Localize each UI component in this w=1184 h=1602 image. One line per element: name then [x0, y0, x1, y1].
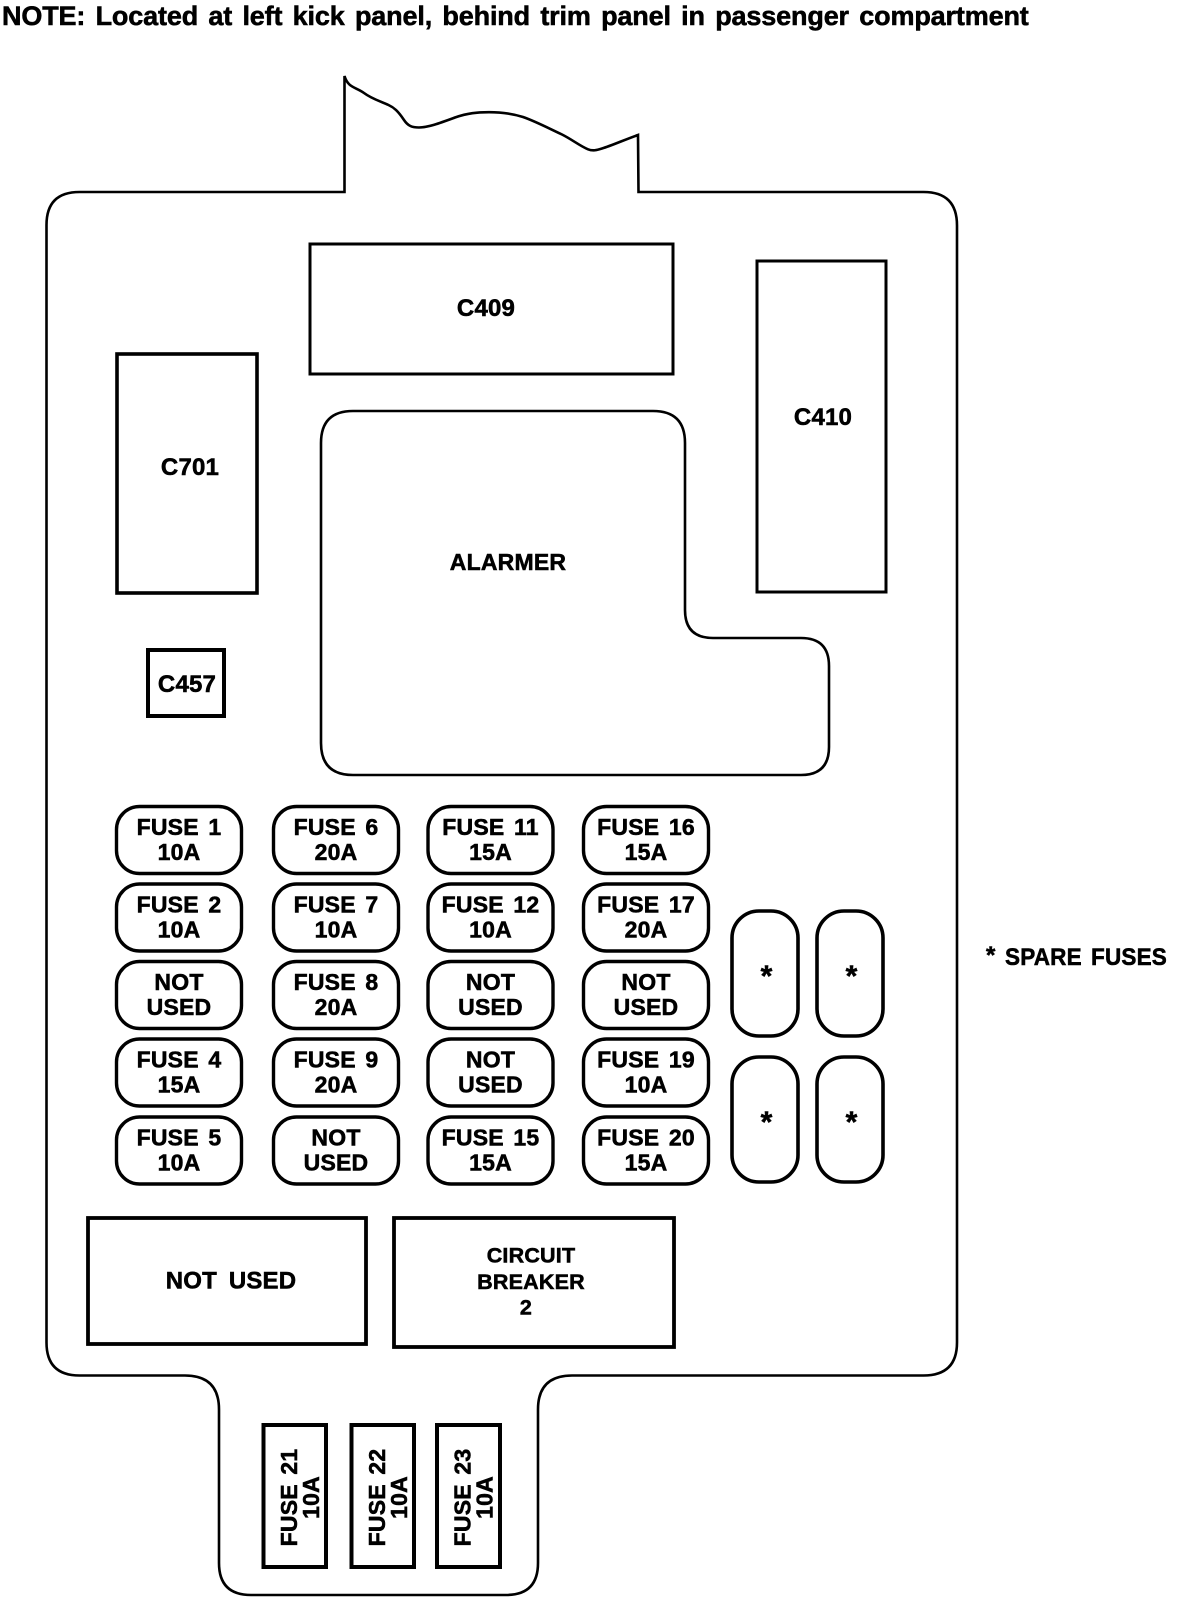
- svg-text:FUSE 15: FUSE 15: [442, 1125, 540, 1151]
- svg-text:10A: 10A: [469, 917, 512, 943]
- svg-text:10A: 10A: [298, 1476, 324, 1519]
- svg-text:USED: USED: [147, 994, 212, 1020]
- svg-text:15A: 15A: [469, 1150, 512, 1176]
- svg-text:10A: 10A: [625, 1072, 668, 1098]
- svg-text:FUSE 6: FUSE 6: [294, 814, 379, 840]
- svg-text:15A: 15A: [469, 839, 512, 865]
- svg-text:FUSE 2: FUSE 2: [137, 892, 222, 918]
- svg-text:FUSE 11: FUSE 11: [442, 814, 538, 840]
- svg-text:NOT: NOT: [466, 969, 515, 995]
- svg-text:NOTE: Located at left kick pan: NOTE: Located at left kick panel, behind…: [2, 1, 1029, 31]
- svg-text:NOT: NOT: [154, 969, 203, 995]
- svg-text:FUSE 16: FUSE 16: [597, 814, 695, 840]
- svg-text:20A: 20A: [625, 917, 668, 943]
- svg-text:NOT: NOT: [311, 1125, 360, 1151]
- svg-text:20A: 20A: [315, 1072, 358, 1098]
- svg-text:20A: 20A: [315, 994, 358, 1020]
- svg-text:USED: USED: [614, 994, 679, 1020]
- svg-text:BREAKER: BREAKER: [477, 1270, 585, 1294]
- svg-text:NOT USED: NOT USED: [166, 1268, 297, 1295]
- svg-text:*: *: [761, 1106, 773, 1139]
- svg-text:10A: 10A: [472, 1476, 498, 1519]
- svg-text:ALARMER: ALARMER: [450, 549, 567, 575]
- svg-text:FUSE 12: FUSE 12: [442, 892, 540, 918]
- svg-text:C409: C409: [457, 295, 515, 322]
- svg-text:NOT: NOT: [621, 969, 670, 995]
- svg-text:10A: 10A: [386, 1476, 412, 1519]
- svg-text:*: *: [986, 942, 996, 969]
- svg-text:FUSE 1: FUSE 1: [137, 814, 222, 840]
- svg-text:FUSE 19: FUSE 19: [597, 1047, 695, 1073]
- svg-text:C457: C457: [158, 671, 216, 698]
- svg-text:10A: 10A: [158, 839, 201, 865]
- svg-text:10A: 10A: [315, 917, 358, 943]
- svg-text:FUSE 20: FUSE 20: [597, 1125, 695, 1151]
- svg-text:15A: 15A: [625, 1150, 668, 1176]
- svg-text:15A: 15A: [158, 1072, 201, 1098]
- svg-text:*: *: [846, 1106, 858, 1139]
- svg-text:SPARE FUSES: SPARE FUSES: [1005, 944, 1167, 971]
- svg-text:15A: 15A: [625, 839, 668, 865]
- svg-text:C701: C701: [161, 454, 219, 481]
- svg-text:FUSE 7: FUSE 7: [294, 892, 379, 918]
- svg-text:CIRCUIT: CIRCUIT: [487, 1244, 576, 1268]
- svg-text:USED: USED: [304, 1150, 369, 1176]
- svg-text:FUSE 4: FUSE 4: [137, 1047, 222, 1073]
- svg-text:10A: 10A: [158, 1150, 201, 1176]
- svg-text:NOT: NOT: [466, 1047, 515, 1073]
- svg-text:FUSE 9: FUSE 9: [294, 1047, 379, 1073]
- svg-text:FUSE 5: FUSE 5: [137, 1125, 222, 1151]
- svg-text:FUSE 17: FUSE 17: [597, 892, 695, 918]
- svg-text:USED: USED: [458, 1072, 523, 1098]
- svg-text:*: *: [846, 960, 858, 993]
- svg-text:USED: USED: [458, 994, 523, 1020]
- svg-text:*: *: [761, 960, 773, 993]
- svg-text:2: 2: [520, 1296, 532, 1320]
- svg-text:C410: C410: [794, 404, 852, 431]
- svg-text:FUSE 8: FUSE 8: [294, 969, 379, 995]
- svg-text:20A: 20A: [315, 839, 358, 865]
- svg-text:10A: 10A: [158, 917, 201, 943]
